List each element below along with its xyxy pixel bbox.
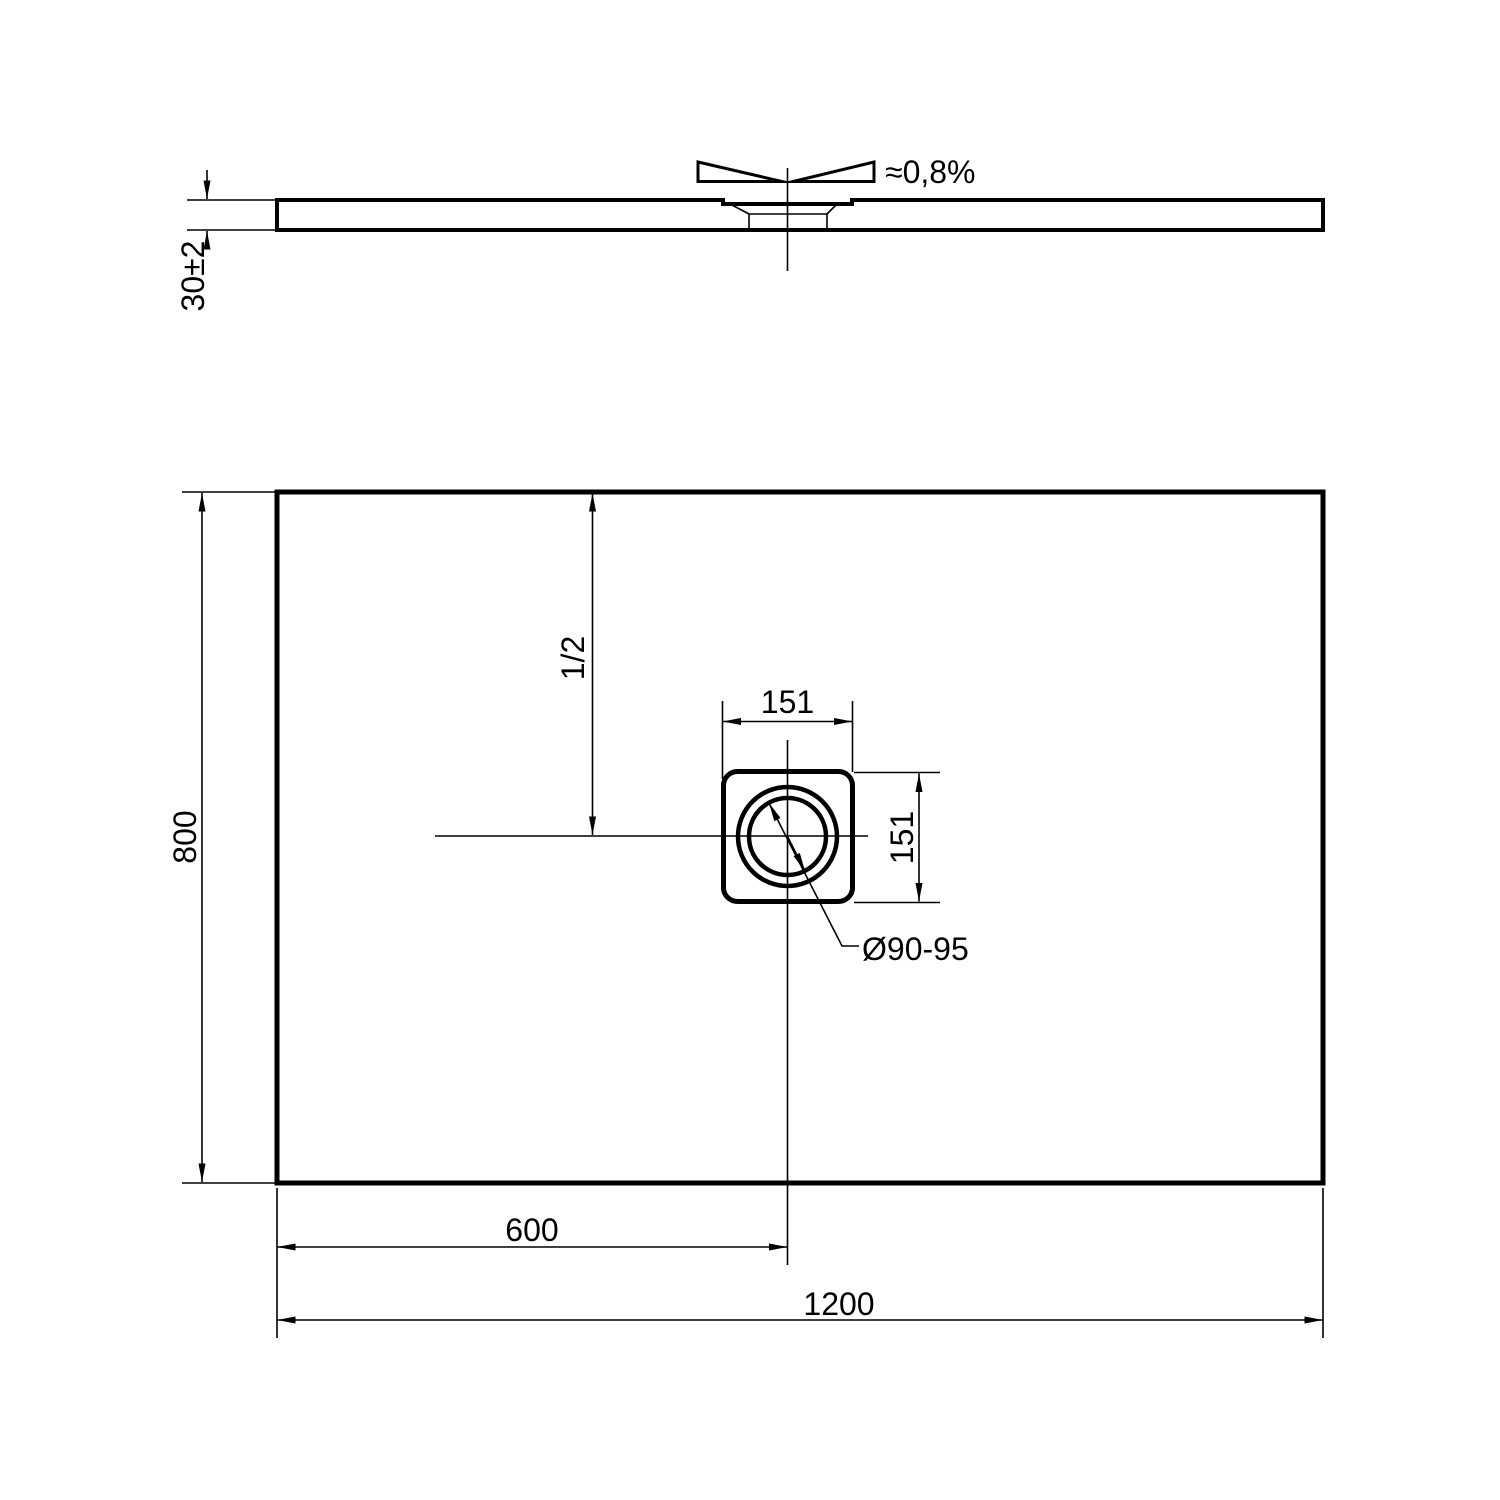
drain-plan <box>435 740 868 1265</box>
half-depth-dimension: 1/2 <box>555 493 593 835</box>
drain-offset-label: 600 <box>505 1212 558 1248</box>
slope-wedge-right-icon <box>793 162 874 182</box>
drain-width-label: 151 <box>761 684 814 720</box>
width-dimension: 800 <box>167 492 277 1183</box>
length-dimension: 1200 <box>277 1286 1323 1322</box>
thickness-dimension: 30±2 <box>175 170 277 311</box>
plan-view: 1/2 151 151 Ø90-95 800 <box>167 492 1323 1338</box>
side-view: ≈0,8% 30±2 <box>175 154 1323 311</box>
drain-diameter-label: Ø90-95 <box>862 931 969 967</box>
tray-section-outline <box>277 200 1323 230</box>
drain-height-label: 151 <box>884 811 920 864</box>
shower-tray-technical-drawing: ≈0,8% 30±2 1/2 <box>0 0 1500 1500</box>
thickness-label: 30±2 <box>175 241 211 312</box>
width-label: 800 <box>167 810 203 863</box>
slope-label: ≈0,8% <box>885 154 976 190</box>
half-depth-label: 1/2 <box>555 636 591 680</box>
drain-height-dimension: 151 <box>854 773 940 903</box>
slope-wedge-left-icon <box>698 162 782 182</box>
drain-offset-dimension: 600 <box>277 1212 788 1248</box>
length-label: 1200 <box>803 1286 874 1322</box>
